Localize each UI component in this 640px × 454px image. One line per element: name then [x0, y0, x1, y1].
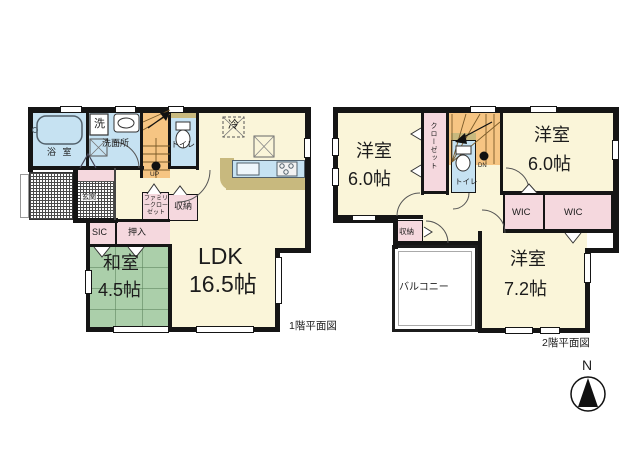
oshiire-label: 押入 [128, 228, 146, 237]
bedroom-ne-size-label: 6.0帖 [528, 155, 571, 173]
storage-1f-label: 収納 [174, 202, 192, 211]
toilet-1f-label: トイレ [171, 141, 195, 149]
balcony-label: バルコニー [399, 283, 449, 293]
bedroom-se-name-label: 洋室 [510, 250, 546, 268]
closet-chevrons [94, 128, 581, 257]
washer-label: 洗 [94, 119, 105, 130]
washroom-label: 洗面所 [102, 139, 129, 148]
ldk-size-label: 16.5帖 [189, 273, 257, 296]
floor-plan-image: 浴 室 洗 洗面所 トイレ UP 冷 LDK 16.5帖 玄関 ファミリークロー… [0, 0, 640, 454]
bedroom-nw-size-label: 6.0帖 [348, 170, 391, 188]
caption-2f: 2階平面図 [542, 338, 590, 349]
bedroom-nw-name-label: 洋室 [356, 142, 392, 160]
wic-right-label: WIC [564, 208, 582, 218]
wic-left-label: WIC [512, 208, 530, 218]
bedroom-se-size-label: 7.2帖 [504, 280, 547, 298]
compass-north-label: N [582, 358, 592, 372]
closet-2f-label: クローゼット [430, 122, 437, 170]
bedroom-ne-name-label: 洋室 [534, 126, 570, 144]
genkan-label: 玄関 [81, 194, 97, 201]
table-cross [254, 136, 274, 157]
door-arc-bedroom-nw [397, 193, 420, 216]
toilet-bowl-2f [456, 155, 470, 171]
ldk-name-label: LDK [198, 245, 243, 268]
bath-label: 浴 室 [47, 148, 74, 157]
kitchen-sink-icon [237, 163, 259, 175]
door-arc-toilet-2f [453, 193, 469, 209]
toilet-2f-label: トイレ [455, 178, 478, 186]
storage-2f-label: 収納 [399, 228, 414, 236]
toilet-tank-2f [456, 146, 471, 154]
washitsu-size-label: 4.5帖 [98, 281, 141, 299]
stairs-2f-dn-dot [480, 152, 489, 161]
door-arc-bedroom-se [482, 210, 505, 233]
toilet-tank-1f [176, 122, 190, 130]
stairs-1f-up-dot [152, 162, 161, 171]
dn-label: DN [478, 163, 487, 169]
caption-1f: 1階平面図 [289, 321, 337, 332]
bathtub-icon [37, 116, 82, 144]
washitsu-name-label: 和室 [103, 254, 139, 272]
fridge-label: 冷 [228, 120, 239, 131]
stairs-2f-arrow-head [455, 133, 467, 144]
up-label: UP [150, 172, 159, 179]
family-closet-label: ファミリークローゼット [144, 196, 168, 218]
sic-label: SIC [92, 228, 107, 237]
stairs-1f-arrow-head [160, 112, 170, 121]
door-arc-ldk [178, 170, 210, 202]
stairs-2f-arrow-line [462, 122, 492, 138]
